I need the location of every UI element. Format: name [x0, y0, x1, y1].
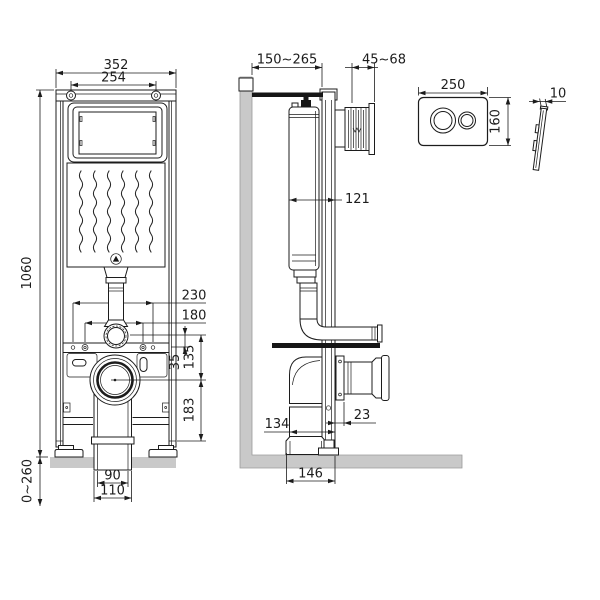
dim-plate-width-label: 250	[441, 78, 466, 93]
front-view: 352 254 1060 0~260 230	[20, 58, 206, 506]
wall-bracket-rod	[252, 93, 323, 98]
frame-rail-side	[320, 89, 337, 455]
dim-drain-offset-label: 134	[265, 417, 290, 432]
drain-elbow	[286, 357, 326, 455]
dim-feet-range-label: 0~260	[21, 459, 36, 503]
mount-bolt-left	[67, 91, 76, 100]
floor-slab-right	[132, 457, 177, 468]
flush-plate-opening	[68, 103, 167, 162]
dim-drain-outer-label: 110	[100, 484, 125, 499]
cistern-tank-panel	[67, 163, 165, 267]
plate-thickness-dimension: 10	[529, 87, 566, 108]
technical-drawing-page: 352 254 1060 0~260 230	[0, 0, 600, 600]
dim-flange-outlet-label: 135	[183, 345, 198, 370]
flush-plate-front-view: 250 160	[419, 78, 512, 146]
dim-stud-offset-label: 23	[354, 408, 371, 423]
cistern-tank-side	[289, 97, 319, 270]
dim-plate-thickness-label: 10	[550, 87, 567, 102]
floor-slab-left	[50, 457, 94, 468]
technical-drawing-canvas: 352 254 1060 0~260 230	[0, 0, 600, 600]
dim-bolt-width-label: 254	[101, 71, 126, 86]
wall-anchor-plate	[239, 78, 253, 91]
dim-wall-distance-label: 150~265	[257, 53, 318, 68]
wc-outlet-connector	[336, 356, 389, 401]
flush-plate-side-view: 10	[529, 87, 566, 171]
dim-finish-range-label: 45~68	[362, 53, 406, 68]
drain-pipe-bottom	[92, 437, 135, 470]
frame-top-plate	[56, 90, 176, 101]
inlet-flange	[104, 324, 128, 348]
dim-tank-depth-label: 121	[345, 192, 370, 207]
flush-pipe-side	[294, 270, 382, 342]
dim-outlet-floor-label: 183	[183, 398, 198, 423]
dim-holes-inner-label: 180	[182, 309, 207, 324]
dim-holes-outer-label: 230	[182, 289, 207, 304]
dim-frame-height-label: 1060	[20, 256, 35, 289]
flush-pipe-front	[104, 267, 128, 327]
dim-drain-inner-label: 90	[104, 469, 121, 484]
mount-bolt-right	[152, 91, 161, 100]
support-bar	[272, 343, 380, 348]
dim-plate-height-label: 160	[489, 109, 504, 134]
access-sleeve-bellows	[335, 104, 375, 155]
dim-flange-bar-label: 35	[168, 354, 183, 371]
dim-base-depth-label: 146	[298, 467, 323, 482]
